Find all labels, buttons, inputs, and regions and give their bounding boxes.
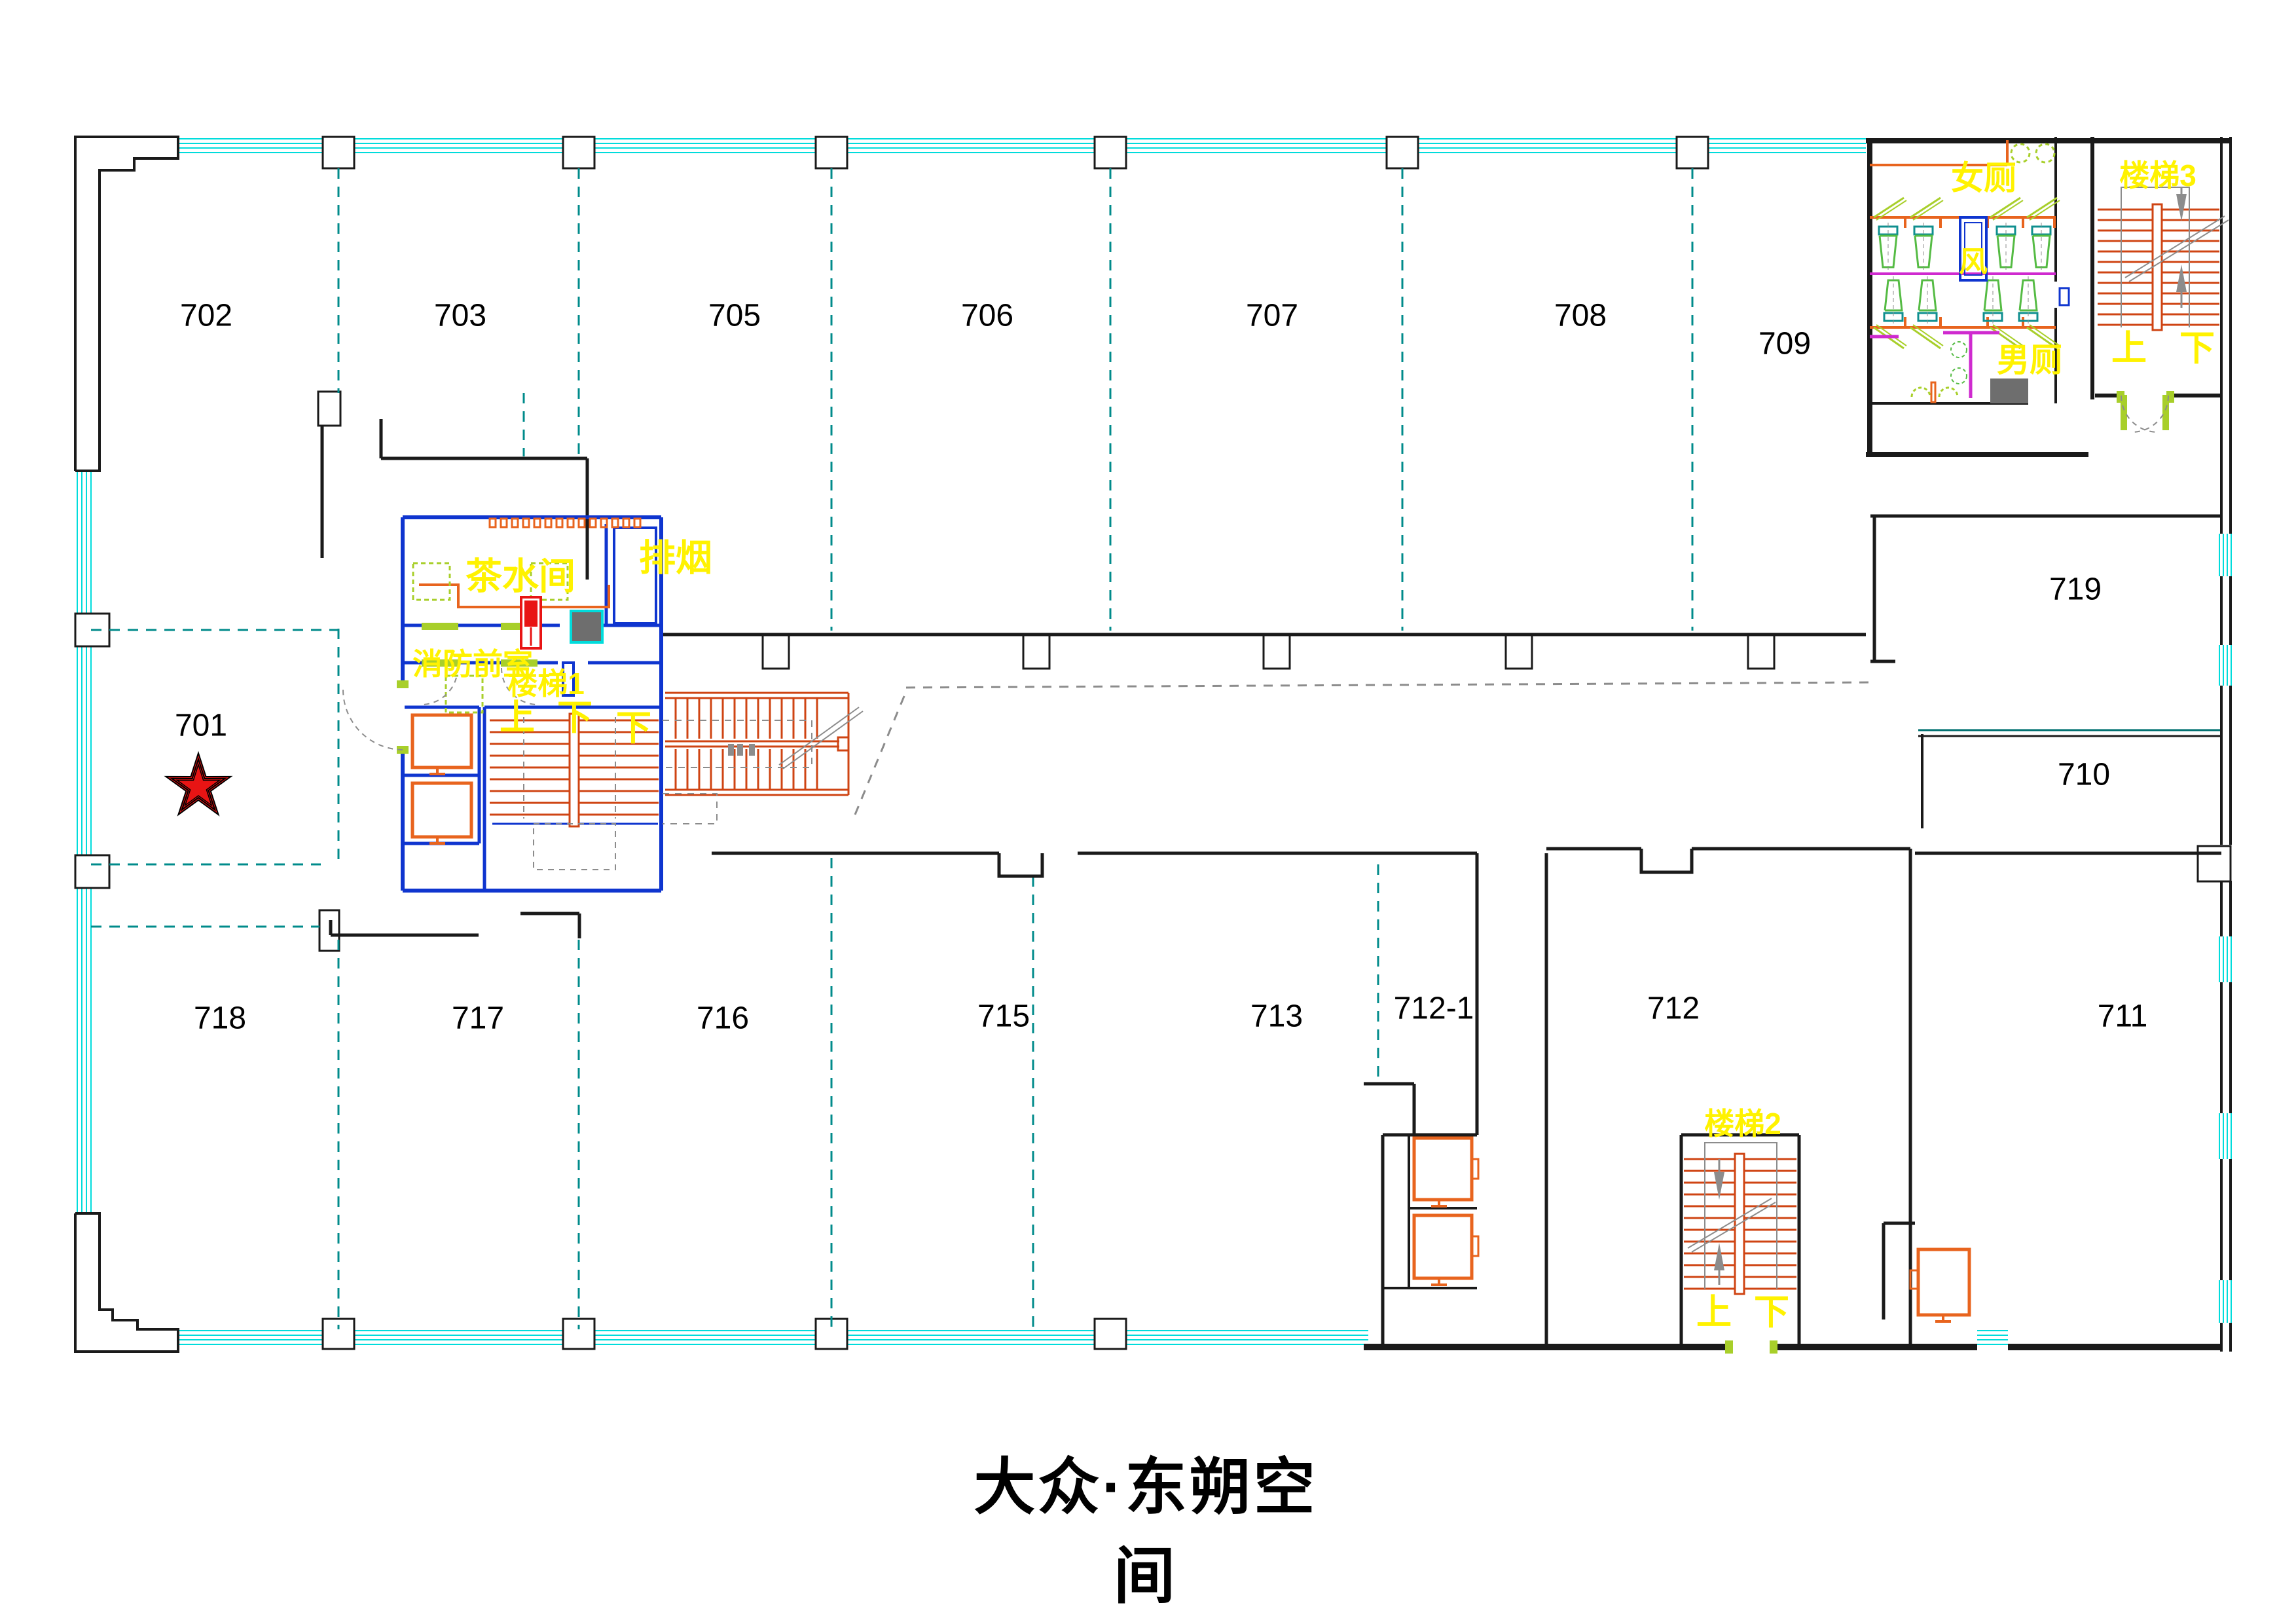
location-star — [166, 753, 231, 815]
room-label-713: 713 — [1250, 999, 1303, 1034]
room-label-712-1: 712-1 — [1394, 991, 1474, 1026]
room-label-712: 712 — [1647, 991, 1700, 1026]
stair2-label: 楼梯2 — [1704, 1107, 1781, 1141]
stair3-label: 楼梯3 — [2119, 158, 2196, 193]
escalator-down-label: 下 — [616, 709, 651, 748]
room-label-710: 710 — [2058, 758, 2110, 792]
stair3-down-label: 下 — [2179, 329, 2215, 368]
tea-room-label: 茶水间 — [465, 556, 575, 597]
floor-plan-stage: 701702703705706707708709719710711712712-… — [0, 0, 2296, 1624]
room-label-702: 702 — [180, 299, 232, 333]
stair2-up-label: 上 — [1696, 1293, 1732, 1332]
room-label-706: 706 — [961, 299, 1013, 333]
stair3-up-label: 上 — [2111, 329, 2147, 368]
room-label-705: 705 — [708, 299, 761, 333]
stair1-label: 楼梯1 — [507, 667, 585, 701]
room-label-707: 707 — [1246, 299, 1298, 333]
room-label-709: 709 — [1758, 327, 1811, 361]
smoke-exhaust-label: 排烟 — [639, 538, 712, 579]
mens-toilet-label: 男厕 — [1997, 342, 2062, 378]
room-label-715: 715 — [977, 999, 1030, 1034]
room-label-708: 708 — [1554, 299, 1607, 333]
room-label-718: 718 — [194, 1001, 246, 1036]
room-label-716: 716 — [697, 1001, 749, 1036]
room-label-711: 711 — [2098, 999, 2148, 1034]
room-label-717: 717 — [452, 1001, 504, 1036]
floor-plan-svg: 701702703705706707708709719710711712712-… — [0, 0, 2296, 1624]
room-label-703: 703 — [434, 299, 486, 333]
womens-toilet-label: 女厕 — [1951, 160, 2016, 196]
plan-title: 大众·东朔空间 — [962, 1437, 1329, 1615]
room-label-701: 701 — [175, 709, 227, 743]
vent-shaft-label: 风 — [1959, 246, 1988, 278]
stair1-up-label: 上 — [500, 698, 535, 737]
stair1-down-label: 下 — [557, 698, 592, 737]
stair2-down-label: 下 — [1754, 1293, 1789, 1332]
room-label-719: 719 — [2049, 572, 2102, 607]
